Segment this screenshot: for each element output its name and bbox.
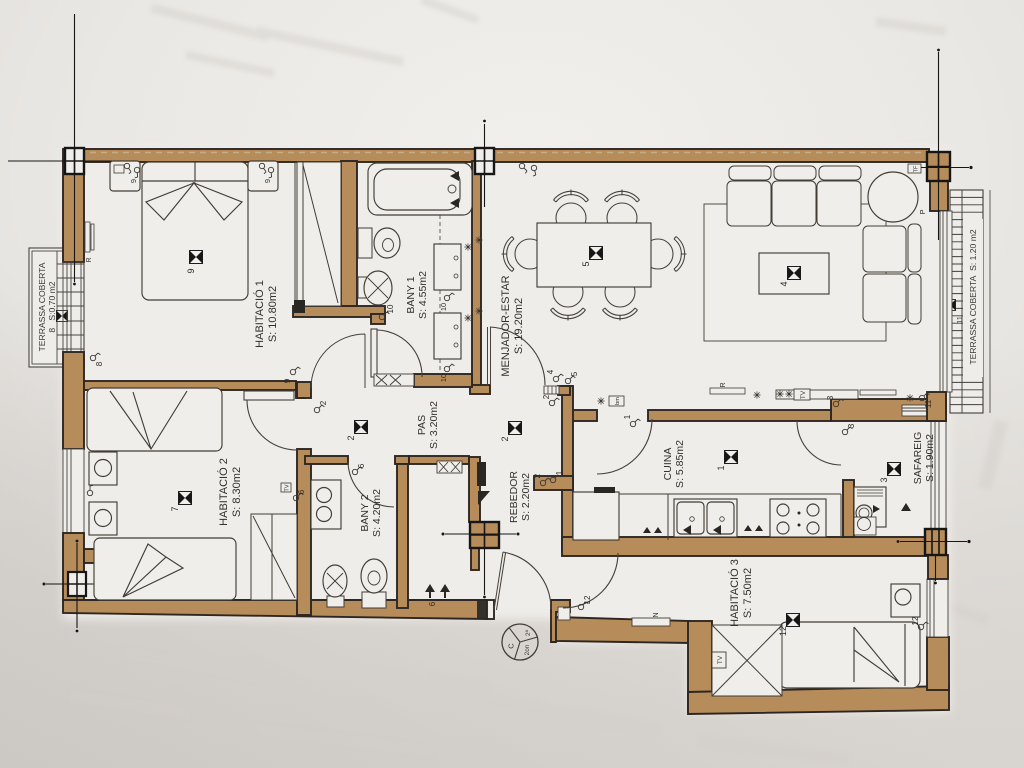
- svg-text:2: 2: [319, 400, 328, 405]
- svg-text:R: R: [720, 382, 727, 387]
- svg-text:HABITACIÓ 3: HABITACIÓ 3: [728, 559, 741, 627]
- svg-text:TV: TV: [800, 390, 807, 399]
- svg-text:S: 8.30m2: S: 8.30m2: [231, 467, 243, 517]
- svg-text:12: 12: [583, 595, 592, 604]
- svg-text:10: 10: [439, 374, 448, 382]
- svg-text:BANY 2: BANY 2: [359, 494, 371, 531]
- svg-text:CUINA: CUINA: [662, 448, 674, 481]
- svg-text:12: 12: [911, 616, 920, 625]
- svg-text:BANY 1: BANY 1: [405, 276, 417, 313]
- svg-text:S: 10.80m2: S: 10.80m2: [267, 286, 279, 342]
- svg-text:1: 1: [623, 414, 632, 419]
- svg-text:2: 2: [542, 394, 551, 399]
- svg-text:9: 9: [263, 179, 272, 183]
- svg-text:9: 9: [129, 179, 138, 183]
- svg-text:2on: 2on: [524, 644, 531, 655]
- svg-text:TERRASSA COBERTA: TERRASSA COBERTA: [37, 262, 47, 351]
- svg-text:HABITACIÓ 2: HABITACIÓ 2: [217, 458, 230, 526]
- svg-text:bm: bm: [615, 397, 621, 405]
- svg-text:TV: TV: [285, 484, 291, 491]
- svg-text:6: 6: [428, 601, 437, 606]
- svg-text:S: 4.20m2: S: 4.20m2: [371, 489, 383, 537]
- svg-text:9: 9: [186, 268, 196, 273]
- svg-text:TERRASSA COBERTA S: 1.20 m2: TERRASSA COBERTA S: 1.20 m2: [968, 229, 978, 365]
- svg-text:2: 2: [533, 473, 542, 478]
- svg-text:5: 5: [581, 261, 591, 266]
- svg-text:TV: TV: [717, 655, 724, 664]
- svg-text:S: 19.20m2: S: 19.20m2: [513, 298, 525, 354]
- svg-text:TF: TF: [914, 165, 920, 172]
- svg-text:6: 6: [297, 489, 306, 494]
- svg-text:PAS: PAS: [416, 415, 428, 435]
- svg-text:S: 1.90m2: S: 1.90m2: [924, 434, 936, 482]
- svg-text:8: 8: [95, 361, 104, 366]
- svg-text:1: 1: [555, 470, 564, 475]
- svg-text:5: 5: [570, 371, 579, 376]
- svg-text:8 S:0.70 m2: 8 S:0.70 m2: [47, 281, 57, 332]
- svg-text:S: 7.50m2: S: 7.50m2: [742, 568, 754, 618]
- svg-text:4: 4: [779, 281, 789, 286]
- svg-text:2: 2: [346, 435, 356, 440]
- svg-text:SAFAREIG: SAFAREIG: [912, 432, 924, 485]
- svg-text:7: 7: [170, 506, 180, 511]
- svg-text:3: 3: [879, 477, 889, 482]
- svg-text:S: 2.20m2: S: 2.20m2: [520, 473, 532, 521]
- svg-text:R: R: [86, 257, 93, 262]
- svg-text:11: 11: [955, 316, 964, 324]
- svg-text:11: 11: [924, 399, 933, 408]
- svg-text:3: 3: [847, 423, 856, 428]
- svg-text:HABITACIÓ 1: HABITACIÓ 1: [253, 280, 266, 348]
- svg-text:2ª: 2ª: [525, 629, 532, 636]
- svg-text:10: 10: [386, 304, 395, 313]
- svg-text:9: 9: [283, 378, 292, 383]
- svg-text:10: 10: [439, 303, 448, 311]
- svg-text:C: C: [507, 643, 516, 649]
- svg-text:6: 6: [357, 463, 366, 468]
- svg-text:P: P: [918, 209, 927, 214]
- svg-text:4: 4: [546, 369, 555, 374]
- svg-text:S: 5.85m2: S: 5.85m2: [674, 440, 686, 488]
- svg-text:12: 12: [778, 626, 788, 636]
- svg-text:S: 4.55m2: S: 4.55m2: [417, 271, 429, 319]
- svg-text:1: 1: [716, 465, 726, 470]
- svg-text:N: N: [653, 612, 660, 617]
- svg-text:3: 3: [826, 395, 835, 400]
- svg-text:MENJADOR-ESTAR: MENJADOR-ESTAR: [500, 275, 512, 376]
- svg-text:2: 2: [500, 436, 510, 441]
- svg-text:S: 3.20m2: S: 3.20m2: [428, 401, 440, 449]
- svg-text:REBEDOR: REBEDOR: [508, 471, 520, 523]
